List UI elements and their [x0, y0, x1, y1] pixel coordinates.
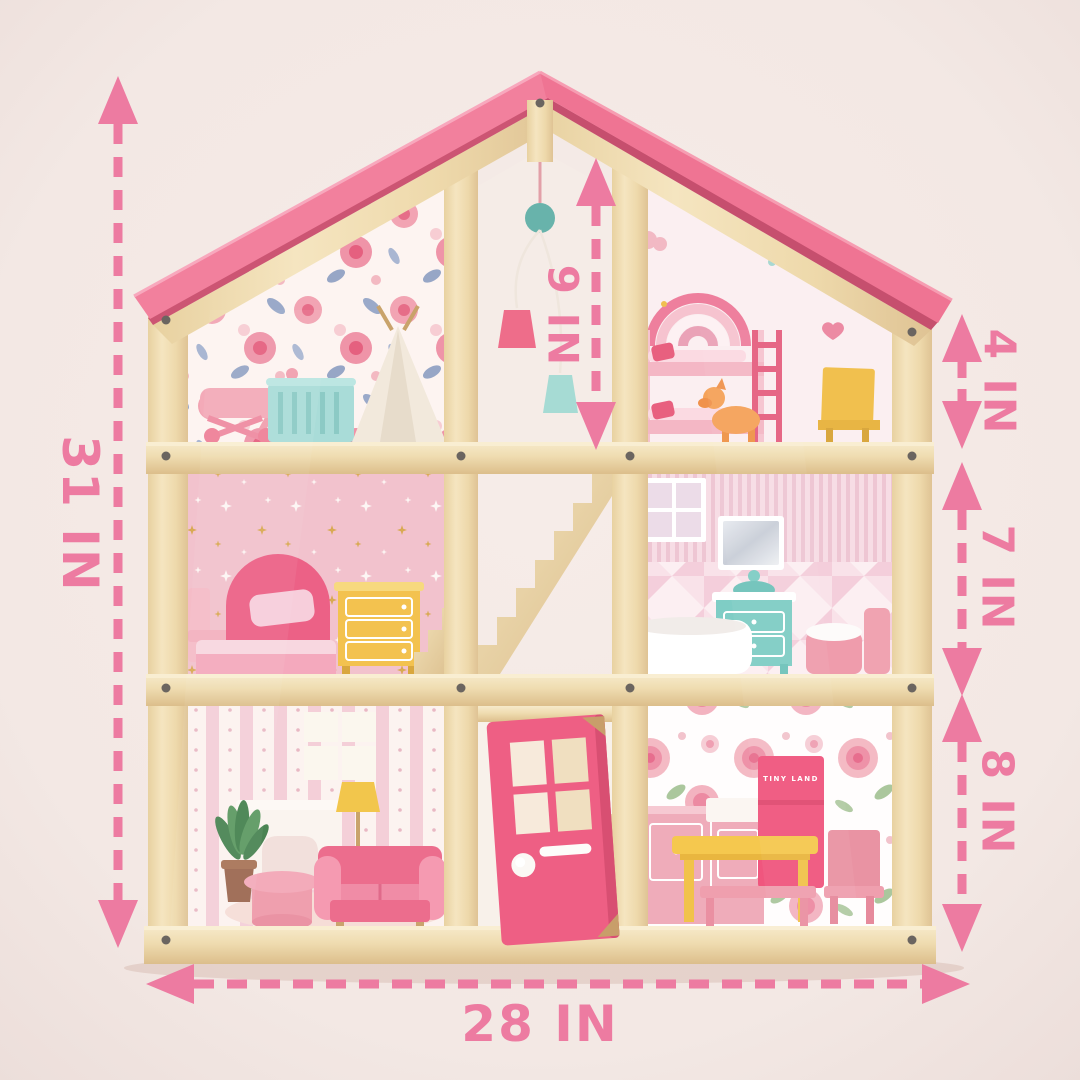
dimension-label-overall-height: 31 IN [51, 435, 109, 592]
mobile-lamp-teal [543, 375, 578, 413]
post-center-left [444, 150, 478, 942]
dimension-label-ground-room: 8 IN [972, 748, 1023, 855]
kitchen-cabinets [640, 798, 764, 924]
bathroom-window [642, 478, 706, 542]
mobile-disc [525, 203, 555, 233]
front-door [486, 714, 619, 946]
post-right [892, 302, 932, 942]
dimension-label-middle-room: 7 IN [972, 524, 1023, 631]
apex-block [527, 100, 553, 162]
mobile-lamp-pink [498, 310, 536, 348]
dollhouse-dimension-diagram: TINY LAND [0, 0, 1080, 1080]
sink [706, 798, 760, 822]
scene: TINY LAND [0, 0, 1080, 1080]
sofa [314, 846, 446, 930]
post-center-right [612, 150, 648, 942]
dimension-label-attic-room: 4 IN [974, 328, 1025, 435]
dimension-label-overall-width: 28 IN [461, 995, 618, 1053]
dresser [334, 582, 424, 674]
dimension-label-stairwell: 9 IN [539, 265, 588, 368]
